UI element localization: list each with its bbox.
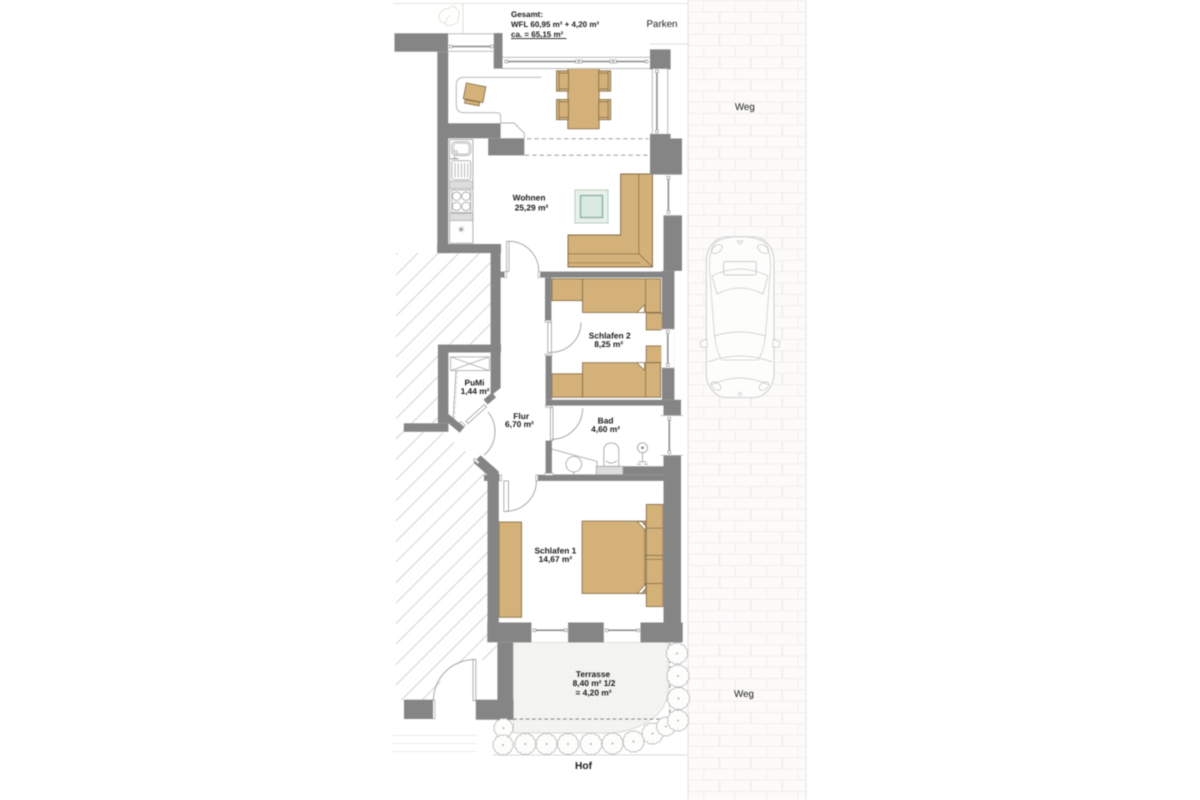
svg-text:14,67 m²: 14,67 m² xyxy=(539,554,573,564)
svg-text:WFL 60,95 m² + 4,20 m²: WFL 60,95 m² + 4,20 m² xyxy=(511,20,599,29)
svg-text:Parken: Parken xyxy=(646,19,677,30)
svg-text:6,70 m²: 6,70 m² xyxy=(505,419,534,429)
svg-text:1,44 m²: 1,44 m² xyxy=(461,386,490,396)
svg-text:Hof: Hof xyxy=(575,761,593,772)
svg-text:Gesamt:: Gesamt: xyxy=(511,10,543,19)
svg-text:4,60 m²: 4,60 m² xyxy=(591,424,620,434)
svg-text:Weg: Weg xyxy=(735,102,755,113)
svg-text:8,25 m²: 8,25 m² xyxy=(594,339,623,349)
svg-text:ca. = 65,15 m²: ca. = 65,15 m² xyxy=(511,30,564,39)
svg-text:25,29 m²: 25,29 m² xyxy=(515,203,549,213)
svg-text:Wohnen: Wohnen xyxy=(513,193,546,203)
svg-text:Weg: Weg xyxy=(734,689,754,700)
svg-text:= 4,20 m²: = 4,20 m² xyxy=(575,687,611,697)
